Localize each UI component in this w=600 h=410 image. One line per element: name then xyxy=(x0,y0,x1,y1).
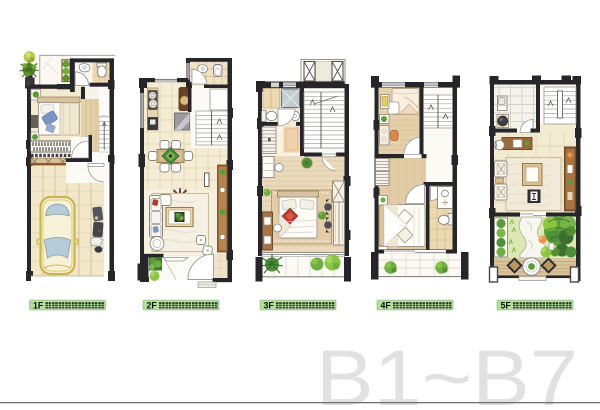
svg-text:5F: 5F xyxy=(501,300,512,310)
svg-text:2F: 2F xyxy=(147,300,158,310)
svg-text:B1~B7: B1~B7 xyxy=(316,333,578,410)
svg-text:4F: 4F xyxy=(381,300,392,310)
svg-text:3F: 3F xyxy=(264,300,275,310)
svg-text:1F: 1F xyxy=(33,300,44,310)
